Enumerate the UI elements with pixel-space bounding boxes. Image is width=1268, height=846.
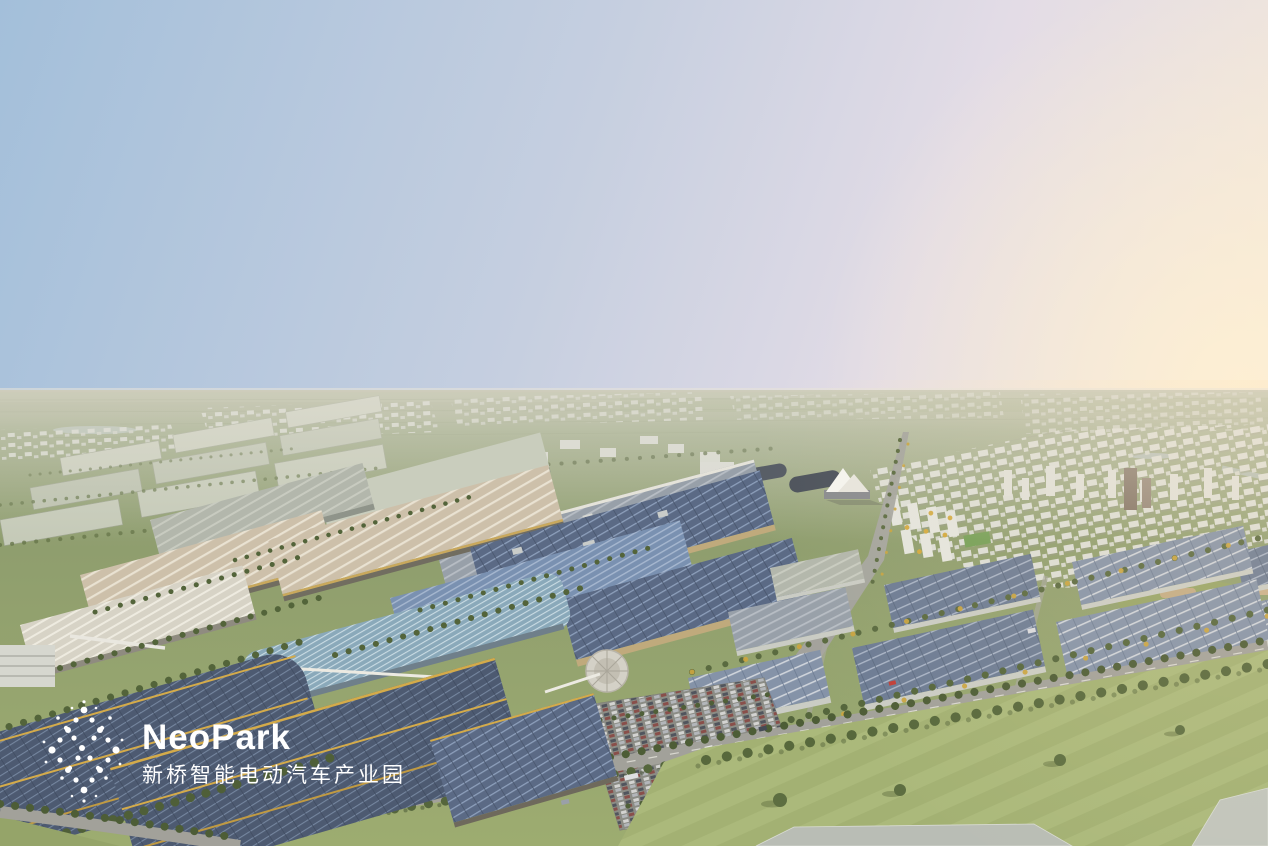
parking-garage (0, 645, 55, 687)
logo-text: NeoPark 新桥智能电动汽车产业园 (142, 718, 406, 786)
neopark-aerial-rendering: NeoPark 新桥智能电动汽车产业园 (0, 0, 1268, 846)
logo-tagline-chinese: 新桥智能电动汽车产业园 (142, 765, 406, 786)
logo-dots-icon (42, 700, 126, 804)
neopark-logo: NeoPark 新桥智能电动汽车产业园 (42, 700, 406, 804)
logo-brand: NeoPark (142, 720, 406, 755)
sunlight-overlay (600, 380, 1268, 846)
sky (0, 0, 1268, 398)
